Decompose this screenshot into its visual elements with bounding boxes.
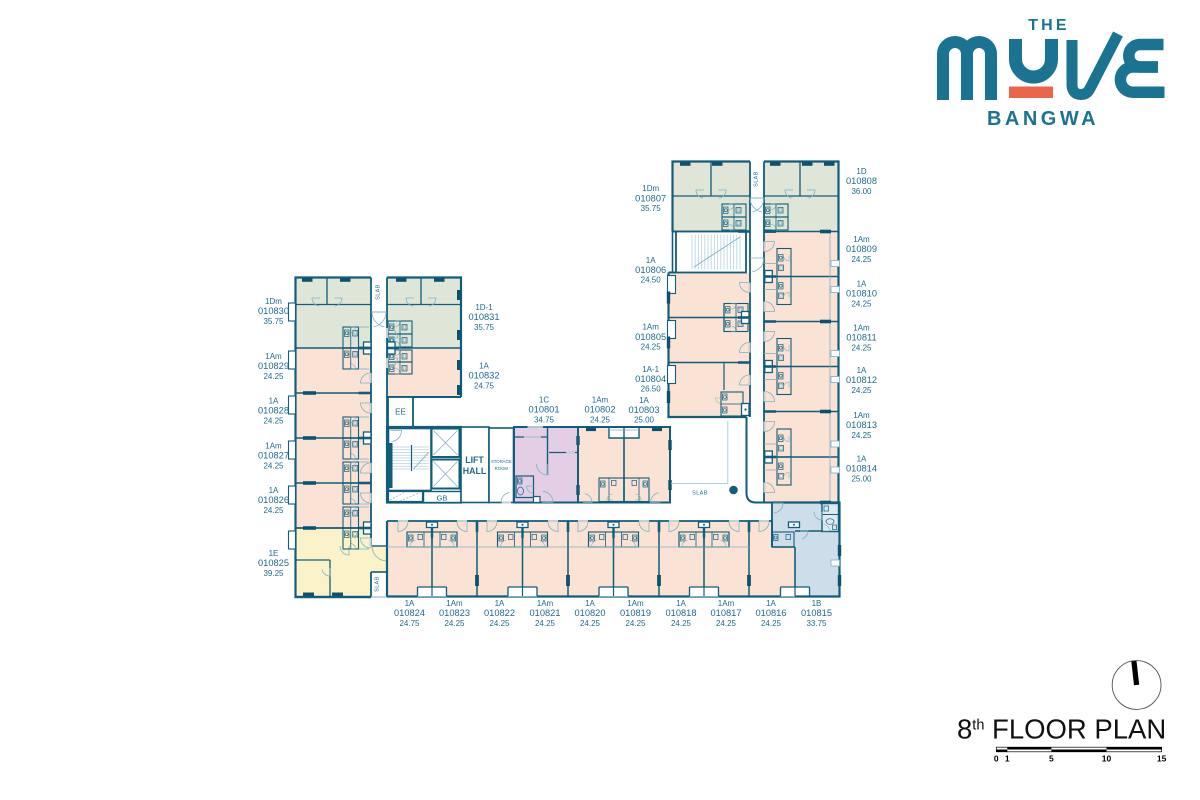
svg-text:SLAB: SLAB bbox=[692, 491, 708, 497]
svg-text:15: 15 bbox=[1157, 754, 1167, 764]
svg-text:SLAB: SLAB bbox=[376, 284, 382, 300]
svg-text:SLAB: SLAB bbox=[375, 576, 381, 592]
svg-text:ROOM: ROOM bbox=[495, 466, 509, 471]
svg-text:0: 0 bbox=[994, 754, 999, 764]
svg-text:5: 5 bbox=[1049, 754, 1054, 764]
svg-text:GB: GB bbox=[437, 494, 448, 503]
svg-text:8th FLOOR PLAN: 8th FLOOR PLAN bbox=[957, 714, 1166, 745]
svg-text:STORAGE: STORAGE bbox=[491, 459, 512, 464]
svg-text:EE: EE bbox=[395, 408, 406, 417]
svg-text:SLAB: SLAB bbox=[754, 171, 760, 187]
svg-text:HALL: HALL bbox=[463, 466, 487, 476]
svg-text:LIFT: LIFT bbox=[465, 455, 484, 465]
svg-text:10: 10 bbox=[1102, 754, 1112, 764]
svg-text:THE: THE bbox=[1028, 17, 1070, 34]
svg-text:BANGWA: BANGWA bbox=[987, 108, 1099, 130]
svg-text:1: 1 bbox=[1005, 754, 1010, 764]
